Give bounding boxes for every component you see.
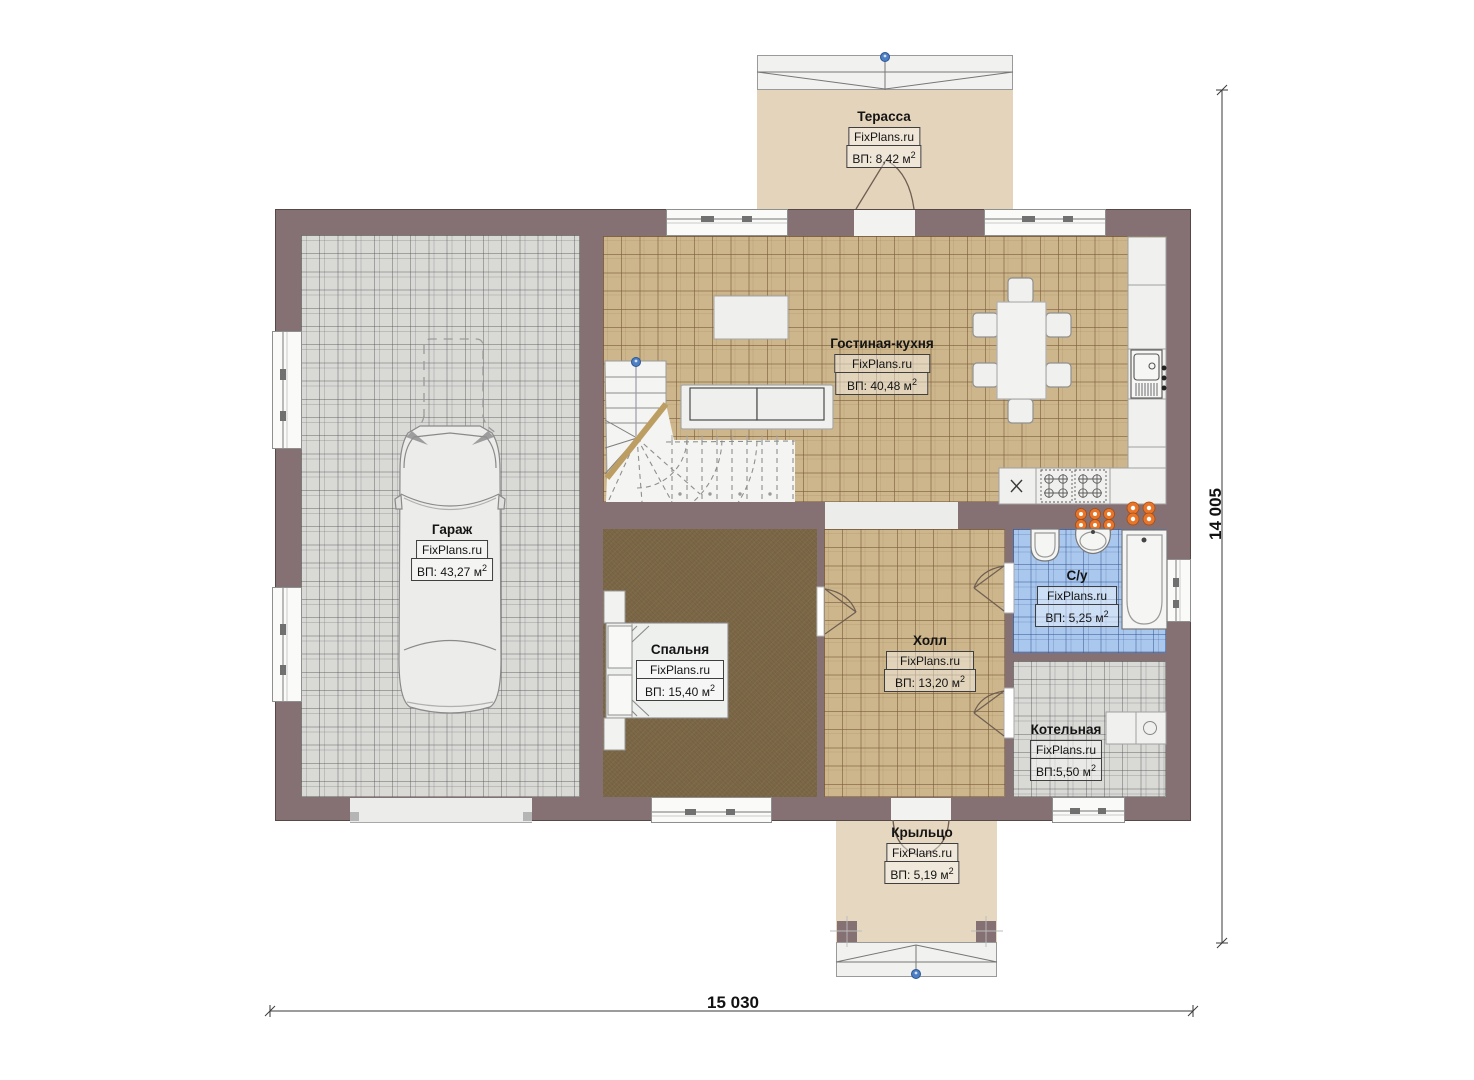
svg-text:15 030: 15 030	[707, 993, 759, 1012]
svg-text:14 005: 14 005	[1206, 488, 1225, 540]
